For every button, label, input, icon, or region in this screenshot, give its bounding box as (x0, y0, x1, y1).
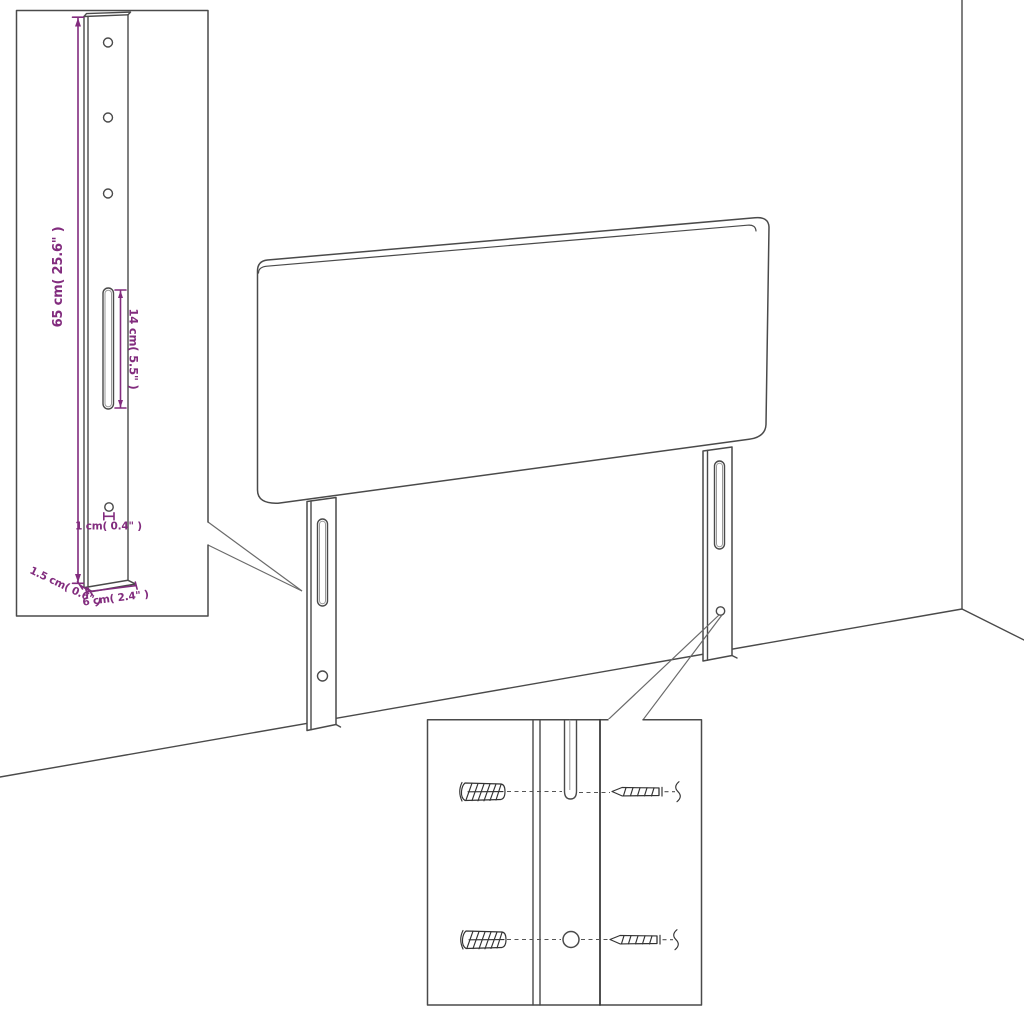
right-leg-foot-tick (732, 656, 737, 659)
left-mounting-leg (307, 498, 341, 731)
product-diagram-canvas: 65 cm( 25.6" ) 14 cm( 5.5" ) 1 cm( 0.4" … (0, 0, 1024, 1024)
hardware-detail-inset (428, 719, 702, 1006)
headboard-panel (258, 218, 770, 504)
bracket-detail-inset: 65 cm( 25.6" ) 14 cm( 5.5" ) 1 cm( 0.4" … (17, 11, 209, 617)
left-leg-foot-tick (336, 725, 341, 728)
dimension-slot-label: 14 cm( 5.5" ) (127, 308, 141, 389)
assembly-diagram: 65 cm( 25.6" ) 14 cm( 5.5" ) 1 cm( 0.4" … (0, 0, 1024, 1024)
floor-line-right (962, 609, 1024, 640)
dimension-hole-label: 1 cm( 0.4" ) (75, 521, 142, 533)
callout-line (208, 522, 302, 591)
callout-line (643, 615, 722, 720)
dimension-height-label: 65 cm( 25.6" ) (51, 227, 66, 328)
right-mounting-leg (703, 447, 737, 661)
callout-line (208, 545, 302, 591)
callout-wedge-left (208, 522, 302, 591)
